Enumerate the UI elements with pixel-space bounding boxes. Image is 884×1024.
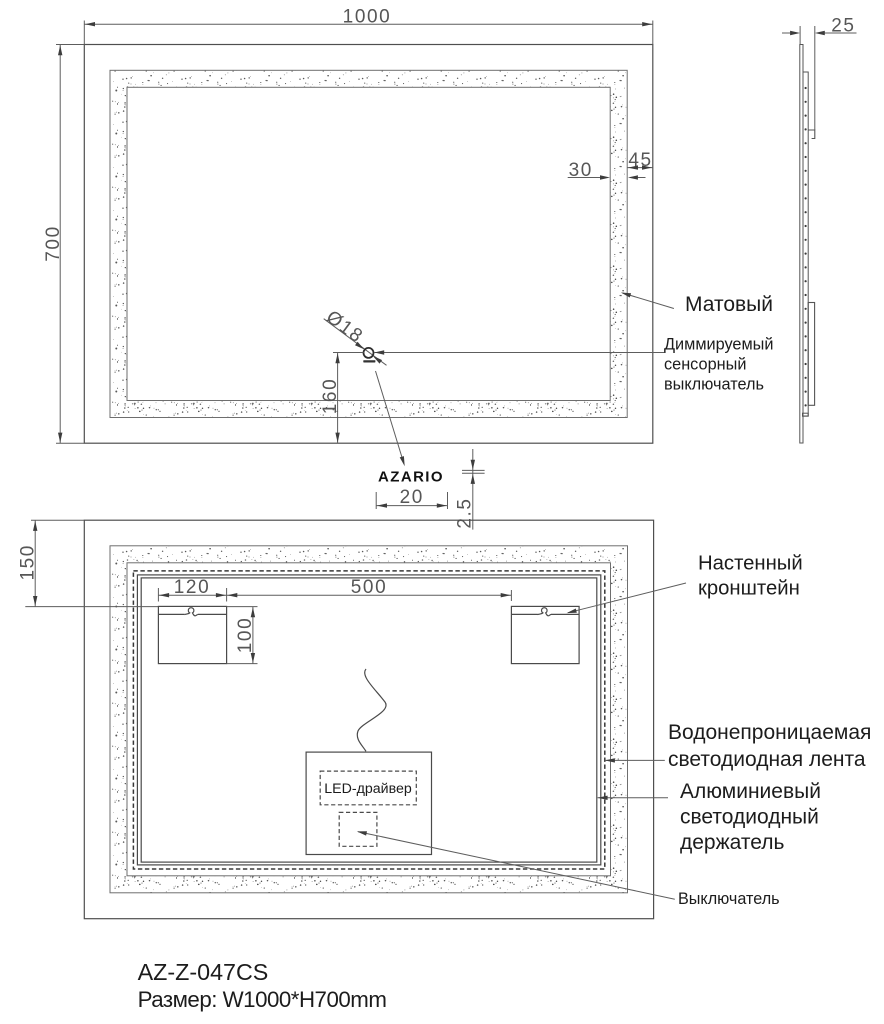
svg-text:кронштейн: кронштейн (698, 578, 800, 600)
svg-text:Алюминиевый: Алюминиевый (680, 780, 821, 803)
svg-text:500: 500 (351, 577, 388, 598)
svg-text:Выключатель: Выключатель (678, 890, 780, 908)
svg-text:сенсорный: сенсорный (664, 356, 746, 374)
svg-text:25: 25 (831, 16, 855, 37)
svg-text:выключатель: выключатель (664, 376, 764, 394)
svg-text:светодиодная лента: светодиодная лента (668, 748, 866, 771)
svg-text:держатель: держатель (680, 831, 784, 854)
svg-text:Водонепроницаемая: Водонепроницаемая (668, 721, 871, 744)
svg-text:AZARIO: AZARIO (378, 469, 444, 486)
svg-text:1000: 1000 (343, 6, 392, 27)
svg-text:Настенный: Настенный (698, 553, 803, 575)
svg-text:светодиодный: светодиодный (680, 806, 819, 829)
svg-text:700: 700 (43, 225, 64, 262)
svg-text:AZ-Z-047CS: AZ-Z-047CS (138, 959, 269, 985)
svg-text:160: 160 (320, 378, 341, 415)
svg-text:100: 100 (235, 617, 256, 654)
svg-text:30: 30 (569, 160, 593, 181)
svg-text:LED-драйвер: LED-драйвер (324, 781, 412, 797)
svg-text:120: 120 (174, 577, 211, 598)
svg-text:45: 45 (628, 150, 652, 171)
svg-text:Матовый: Матовый (685, 293, 773, 316)
svg-text:Размер: W1000*H700mm: Размер: W1000*H700mm (138, 987, 387, 1012)
svg-text:Диммируемый: Диммируемый (664, 336, 773, 354)
svg-text:20: 20 (400, 487, 424, 508)
svg-text:2.5: 2.5 (455, 497, 476, 528)
svg-text:150: 150 (18, 544, 39, 581)
